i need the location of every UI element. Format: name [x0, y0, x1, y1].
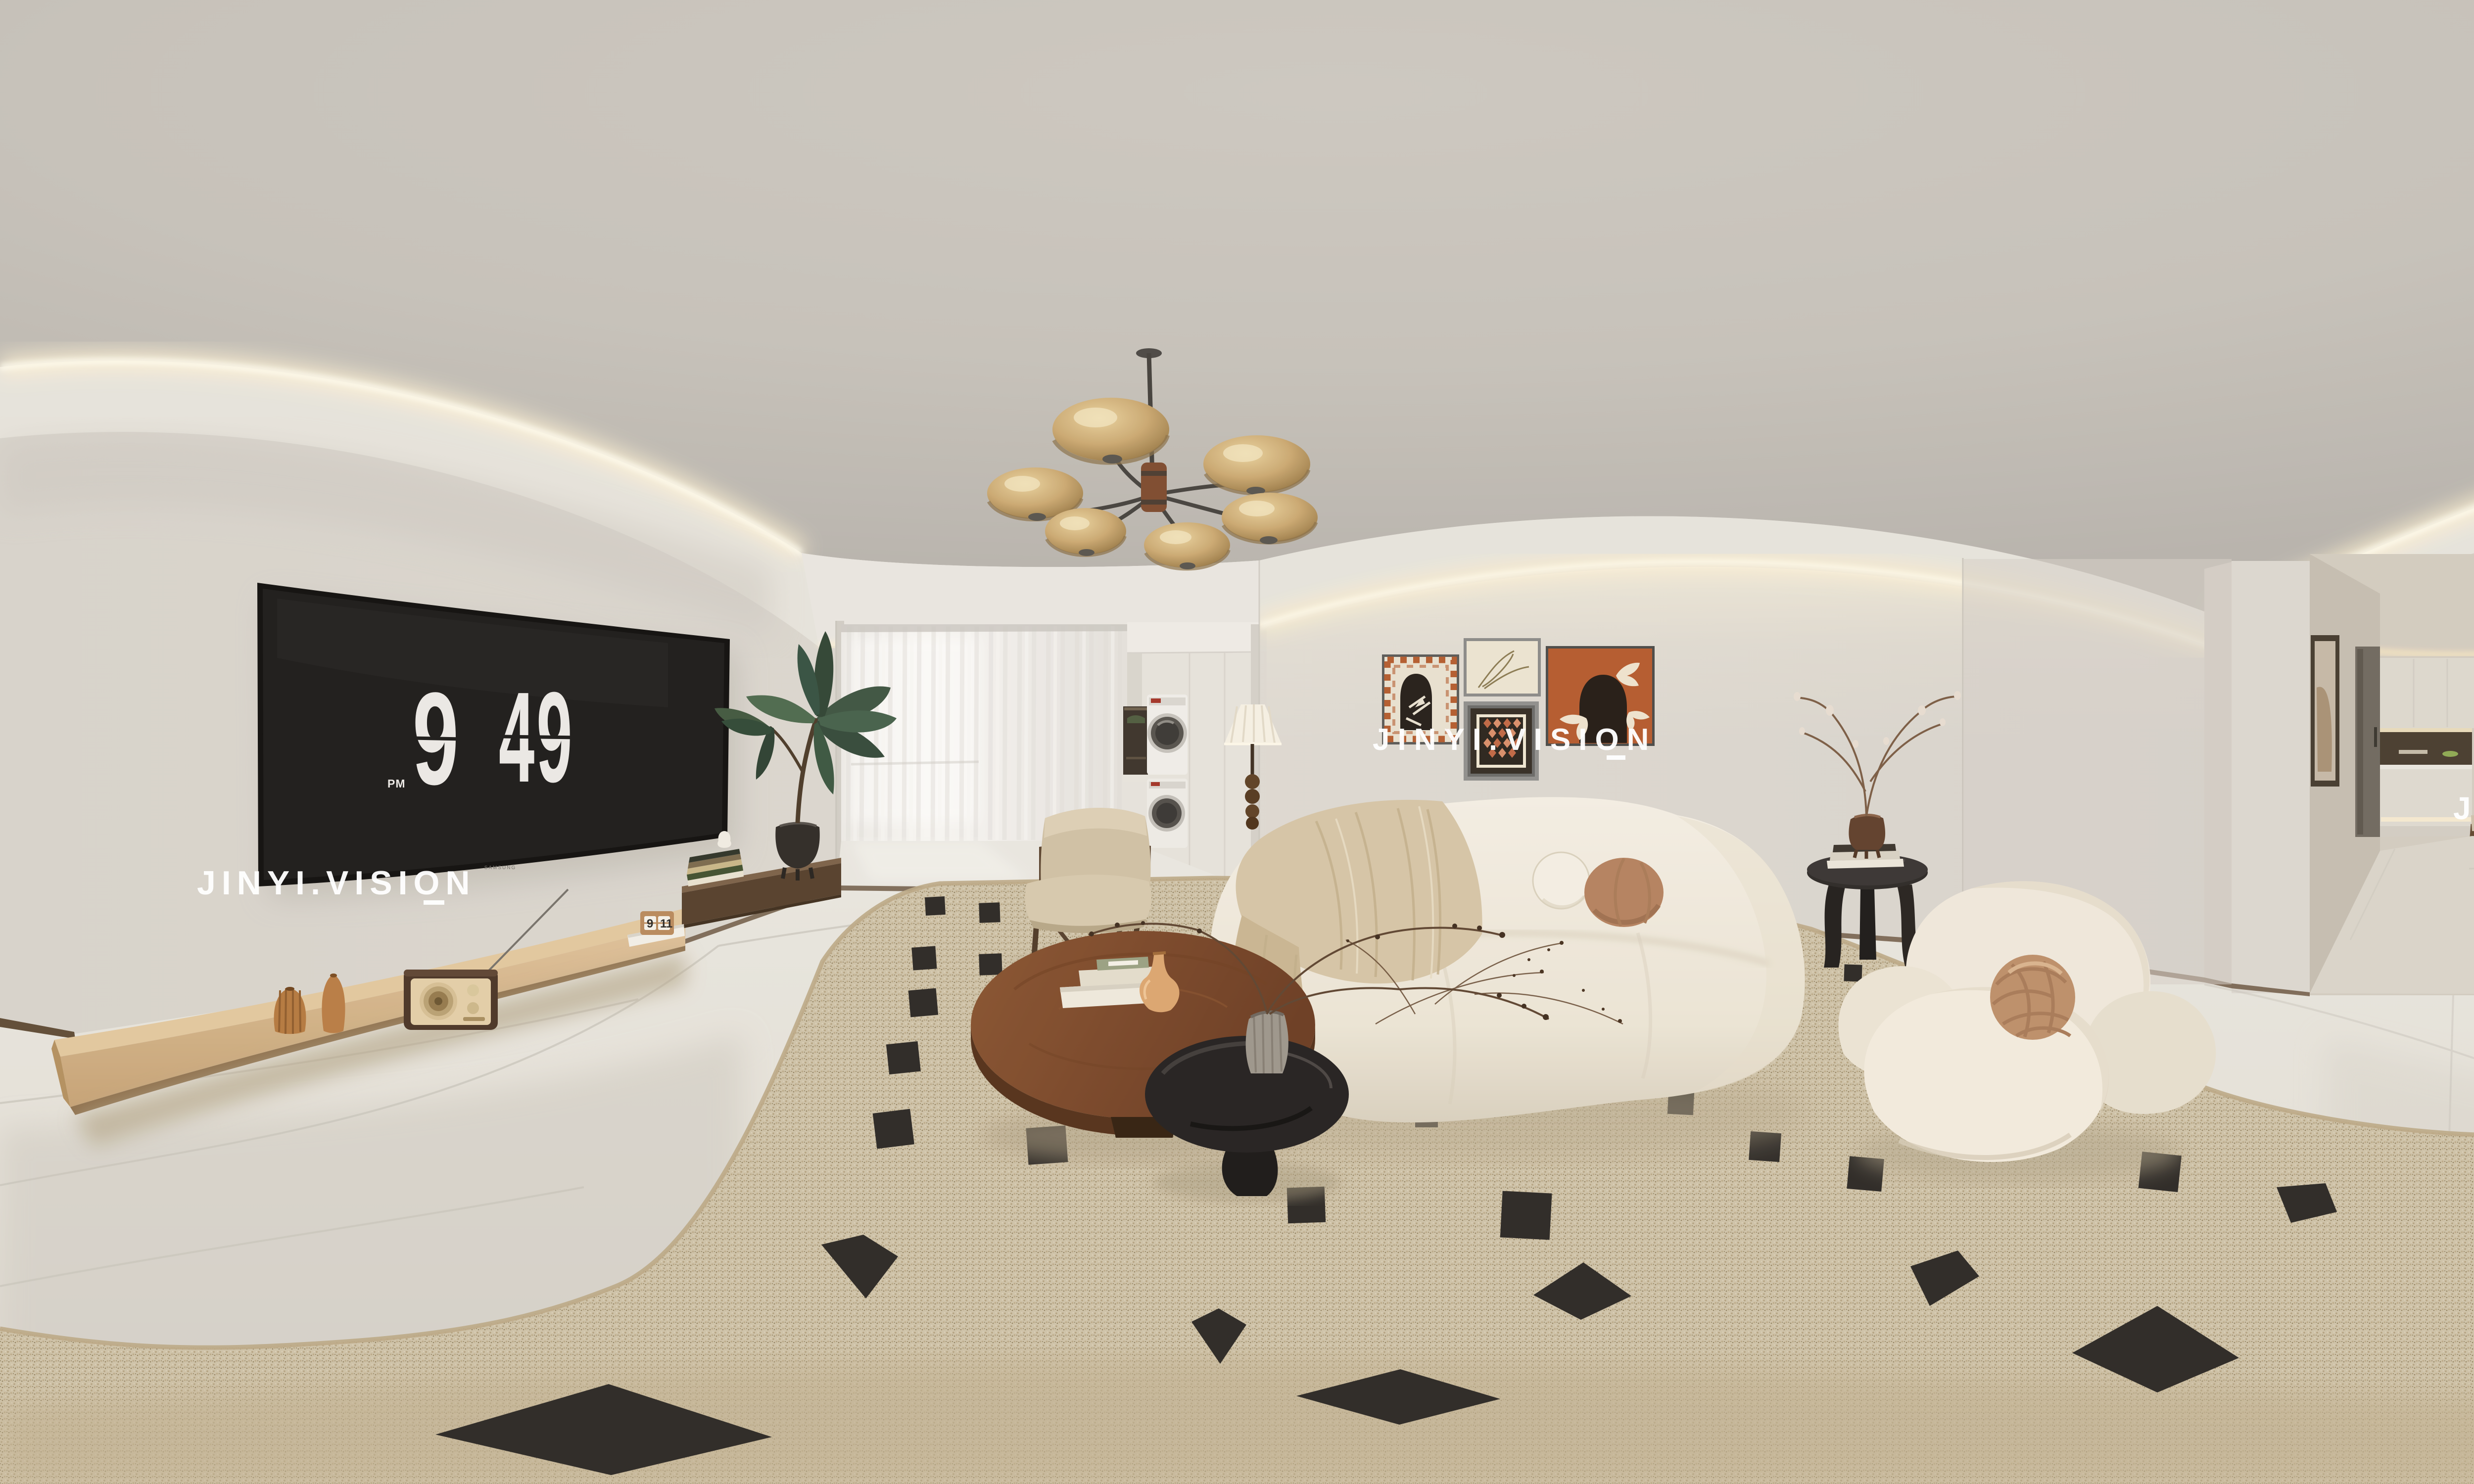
svg-text:JINYI.VISION: JINYI.VISION	[197, 864, 476, 902]
svg-text:JINYI.VISION: JINYI.VISION	[2453, 790, 2474, 826]
svg-text:JINYI.VISION: JINYI.VISION	[1373, 723, 1657, 757]
